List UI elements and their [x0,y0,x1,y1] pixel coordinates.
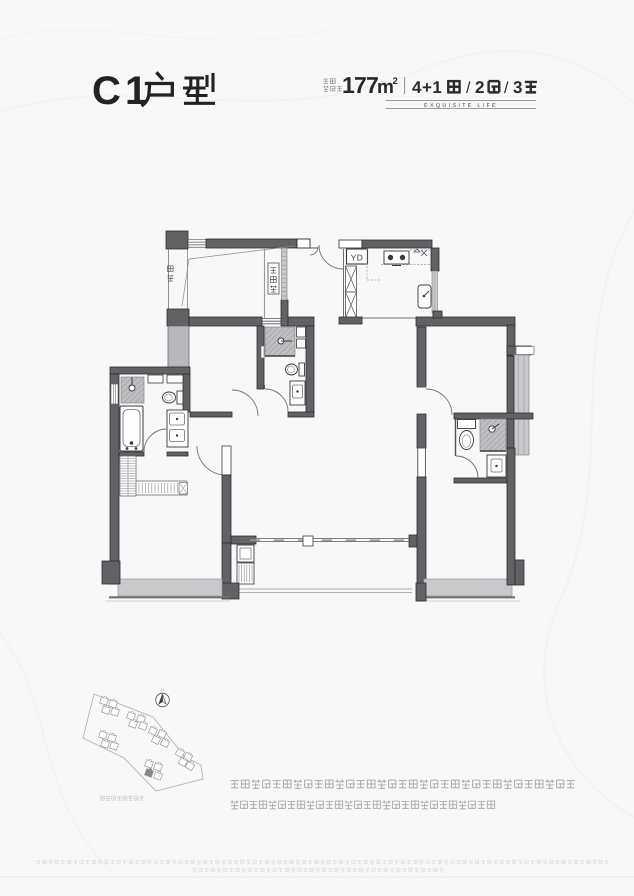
svg-text:C: C [92,69,121,113]
svg-text:2: 2 [393,76,398,87]
svg-text:3: 3 [513,78,522,97]
svg-text:/: / [504,80,509,97]
svg-text:/: / [466,80,471,97]
svg-text:177: 177 [342,72,378,98]
svg-text:m: m [377,77,394,98]
svg-text:EXQUISITE LIFE: EXQUISITE LIFE [424,103,498,109]
svg-text:1: 1 [125,69,147,113]
svg-text:2: 2 [475,78,484,97]
svg-text:YD: YD [351,253,364,263]
svg-text:4+1: 4+1 [412,78,442,97]
